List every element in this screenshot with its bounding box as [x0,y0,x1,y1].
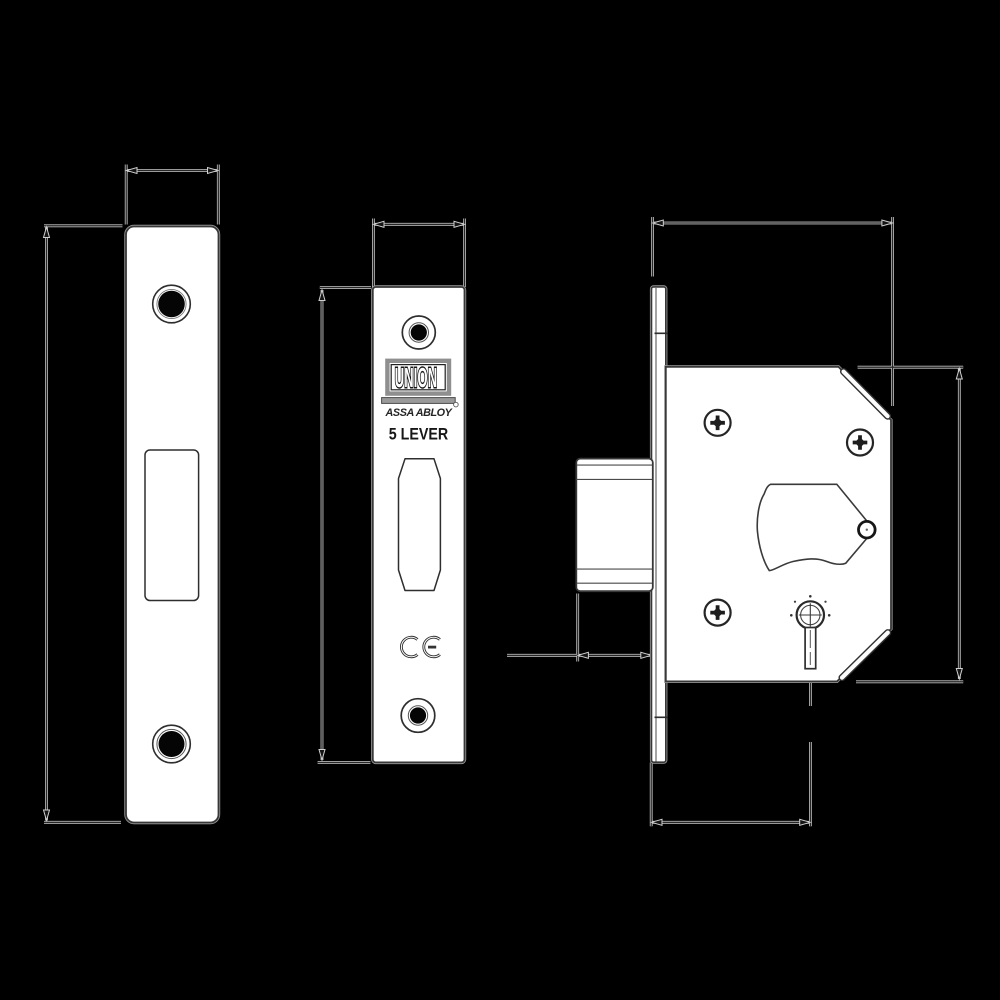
svg-text:ASSA ABLOY: ASSA ABLOY [385,407,454,419]
svg-text:UNION: UNION [395,363,438,394]
svg-text:5 LEVER: 5 LEVER [389,426,448,444]
